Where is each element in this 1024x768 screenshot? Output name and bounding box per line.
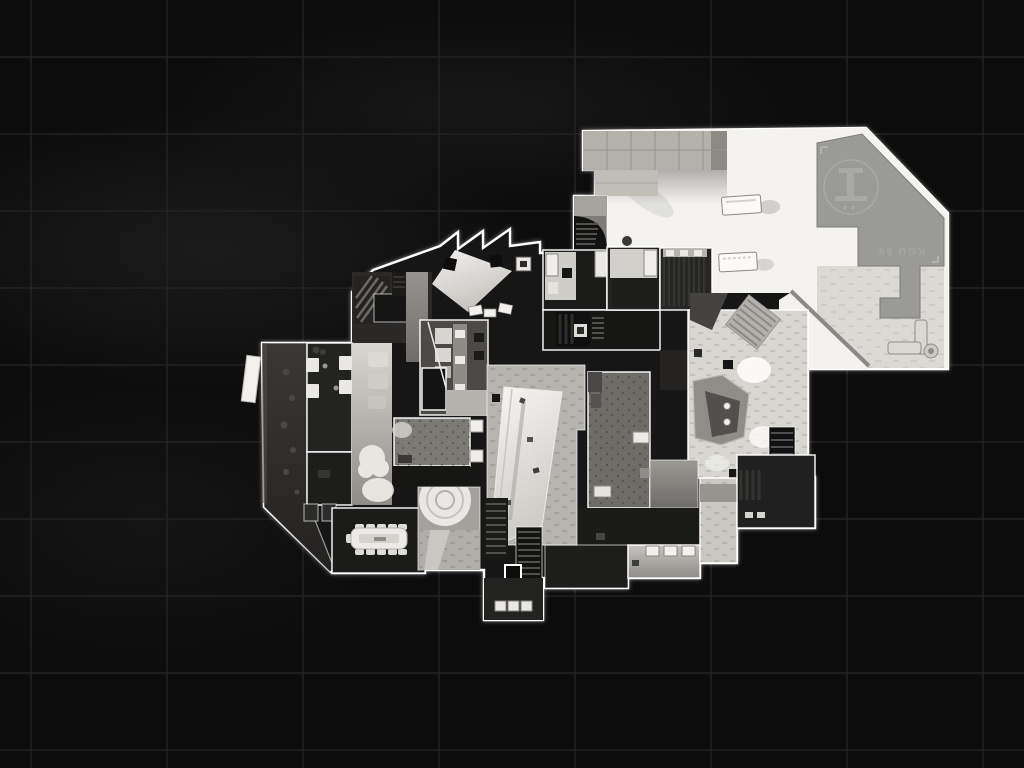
counter-box-icon [646,546,659,556]
dark-floor [392,466,470,488]
dark-patio [545,545,628,588]
vent-strip [392,272,406,296]
counter-box-icon [682,546,695,556]
map-canvas: KGU 69 [0,0,1024,768]
desk-icon [594,486,611,497]
chair-icon [323,364,328,369]
table [368,352,388,367]
dark-booth [374,294,408,322]
skylight-table [489,254,502,267]
desk-icon [633,432,649,443]
light-glow [737,357,771,383]
table [694,349,702,357]
lobby-pillar [622,236,632,246]
door-stub [304,504,318,521]
light-glow [392,422,412,438]
gray-room [650,460,698,508]
chair-icon [724,419,731,426]
crate [596,533,605,540]
cabinet-icon [470,450,483,462]
furniture [548,282,558,294]
chair-icon [724,403,731,410]
bathroom-block [420,320,488,415]
conference-room [332,508,425,573]
counter-box-icon [664,546,677,556]
corridor-shadow-band [700,484,737,502]
chair-icon [334,386,339,391]
dark-office [307,452,352,505]
bed-icon [546,254,558,276]
locker-icon [521,601,532,611]
table [368,396,386,409]
stairwell-lobby [484,578,543,620]
table [723,360,733,369]
cabinet [591,394,601,408]
connector-hall [660,350,688,390]
reception-area [688,293,808,478]
game-screen: KGU 69 [0,0,1024,768]
plant-icon [320,349,326,355]
plant-icon [313,347,320,354]
light-glow [362,478,394,502]
locker-icon [508,601,519,611]
table [368,374,388,389]
locker-icon [495,601,506,611]
spiral-stair-room [418,474,480,570]
light-glow [705,455,729,471]
bed-icon [644,250,657,276]
sofa-icon [468,305,482,316]
helipad-label: KGU 69 [877,245,925,256]
sink-icon [455,330,465,338]
cabinet-icon [470,420,483,432]
table [562,268,572,278]
sofa-icon [484,309,496,317]
skylight-table [443,257,457,271]
sink-icon [455,356,465,364]
north-corridor [574,196,607,253]
bed-icon [595,251,607,277]
elevator-shaft [505,565,521,580]
